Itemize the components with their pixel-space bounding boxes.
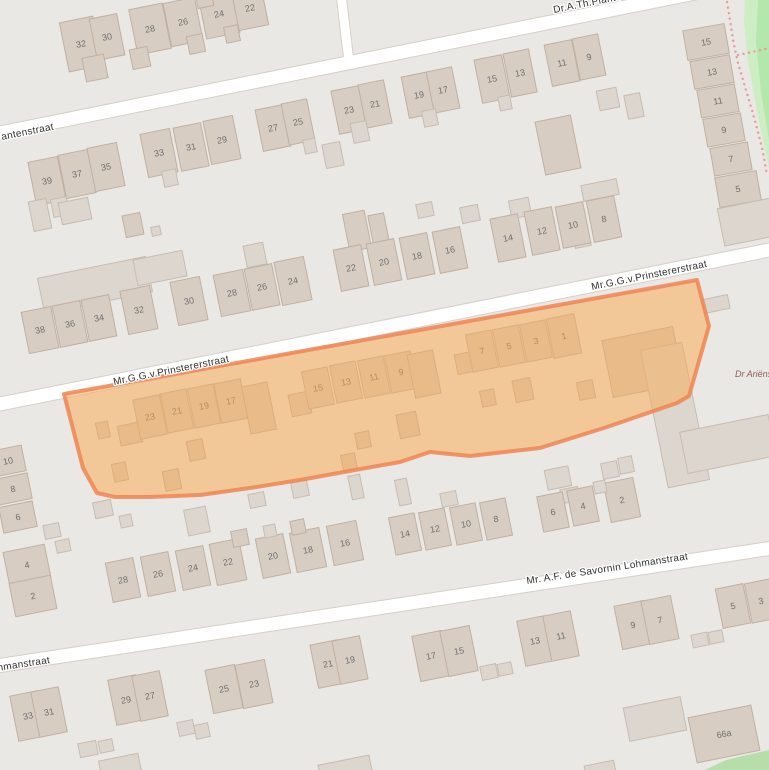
house-number: 24 <box>213 8 225 20</box>
house-number: 30 <box>183 295 195 307</box>
house-number: 13 <box>514 67 526 79</box>
house-number: 10 <box>2 455 14 467</box>
building <box>43 523 61 540</box>
house-number: 32 <box>133 304 145 316</box>
house-number: 25 <box>218 683 230 695</box>
house-number: 15 <box>486 73 498 85</box>
building <box>122 212 144 237</box>
building <box>263 524 277 538</box>
building <box>93 499 114 518</box>
building <box>186 34 205 55</box>
house-number: 14 <box>502 232 514 244</box>
map-viewport[interactable]: 3230282624223937353331292725232119171513… <box>0 0 769 770</box>
house-number: 25 <box>292 116 304 128</box>
house-number: 17 <box>437 84 449 96</box>
house-number: 10 <box>460 518 472 530</box>
building <box>231 529 250 548</box>
house-number: 22 <box>345 262 357 274</box>
house-number: 31 <box>43 706 55 718</box>
house-number: 13 <box>529 635 541 647</box>
house-number: 21 <box>369 98 381 110</box>
house-number: 31 <box>185 141 197 153</box>
house-number: 28 <box>144 23 156 35</box>
building <box>55 539 71 554</box>
building <box>708 630 724 645</box>
building <box>601 461 620 480</box>
building <box>151 226 162 237</box>
house-number: 13 <box>706 66 718 78</box>
house-number: 18 <box>411 250 423 262</box>
house-number: 22 <box>244 2 256 14</box>
house-number: 28 <box>117 574 129 586</box>
building <box>129 46 151 69</box>
building <box>480 664 498 681</box>
house-number: 33 <box>22 710 34 722</box>
house-number: 18 <box>302 544 314 556</box>
building <box>691 632 709 648</box>
building <box>184 506 211 536</box>
house-number: 28 <box>226 287 238 299</box>
house-number: 15 <box>700 36 712 48</box>
house-number: 23 <box>248 678 260 690</box>
house-number: 20 <box>378 256 390 268</box>
house-number: 17 <box>425 650 437 662</box>
building <box>78 740 98 757</box>
house-number: 29 <box>120 694 132 706</box>
house-number: 29 <box>216 134 228 146</box>
building <box>98 739 114 754</box>
building <box>460 204 481 223</box>
building <box>290 519 306 535</box>
building <box>593 480 607 494</box>
house-number: 19 <box>344 654 356 666</box>
building <box>497 662 513 677</box>
building <box>243 242 267 268</box>
house-number: 16 <box>444 244 456 256</box>
building <box>248 492 266 509</box>
house-number: 30 <box>101 31 113 43</box>
house-number: 16 <box>339 537 351 549</box>
building <box>498 95 513 111</box>
house-number: 24 <box>187 562 199 574</box>
house-number: 37 <box>71 168 83 180</box>
house-number: 10 <box>567 219 579 231</box>
house-number: 21 <box>322 658 334 670</box>
house-number: 36 <box>64 318 76 330</box>
building <box>350 121 370 144</box>
house-number: 39 <box>41 175 53 187</box>
house-number: 23 <box>343 104 355 116</box>
building <box>618 456 635 474</box>
building <box>119 514 133 528</box>
house-number: 26 <box>152 568 164 580</box>
house-number: 27 <box>144 690 156 702</box>
building <box>440 491 458 508</box>
house-number: 11 <box>556 57 567 69</box>
house-number: 32 <box>75 38 87 50</box>
building <box>177 720 195 737</box>
house-number: 12 <box>429 523 441 535</box>
house-number: 11 <box>555 630 566 642</box>
house-number: 12 <box>536 225 548 237</box>
house-number: 11 <box>713 95 724 106</box>
building <box>422 109 439 127</box>
house-number: 35 <box>100 161 112 173</box>
building <box>544 466 571 490</box>
building <box>416 202 434 219</box>
house-number: 24 <box>287 275 299 287</box>
map-canvas[interactable]: 3230282624223937353331292725232119171513… <box>0 0 769 770</box>
building <box>303 138 318 154</box>
house-number: 26 <box>256 281 268 293</box>
building <box>162 169 179 187</box>
building <box>224 25 241 43</box>
area-label: Dr Ariëns <box>735 369 769 379</box>
building <box>596 87 620 111</box>
house-number: 20 <box>267 550 279 562</box>
house-number: 26 <box>177 16 189 28</box>
house-number: 22 <box>222 556 234 568</box>
house-number: 14 <box>399 528 411 540</box>
building <box>82 54 108 82</box>
house-number: 38 <box>34 324 46 336</box>
house-number: 33 <box>153 147 165 159</box>
house-number: 27 <box>267 122 279 134</box>
house-number: 34 <box>93 312 105 324</box>
house-number: 15 <box>453 645 465 657</box>
house-number: 19 <box>413 89 425 101</box>
building <box>194 723 210 739</box>
